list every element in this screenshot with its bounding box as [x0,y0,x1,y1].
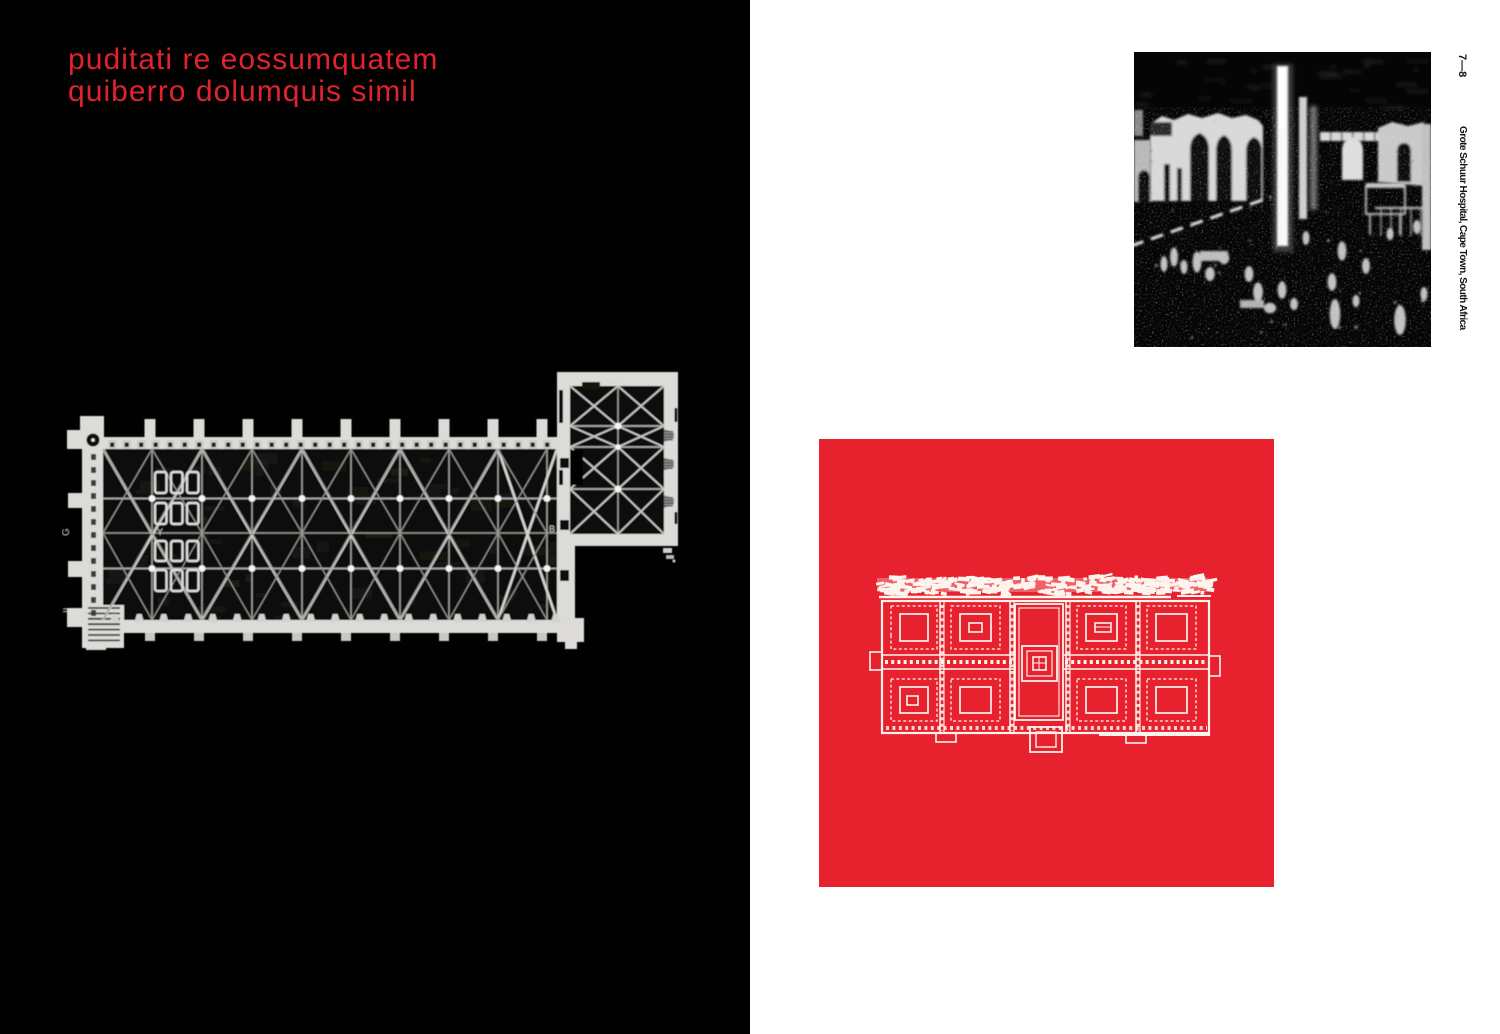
svg-text:Y: Y [157,527,163,537]
svg-text:B: B [549,524,555,534]
svg-text:G: G [62,528,72,536]
svg-text:II: II [62,607,73,613]
